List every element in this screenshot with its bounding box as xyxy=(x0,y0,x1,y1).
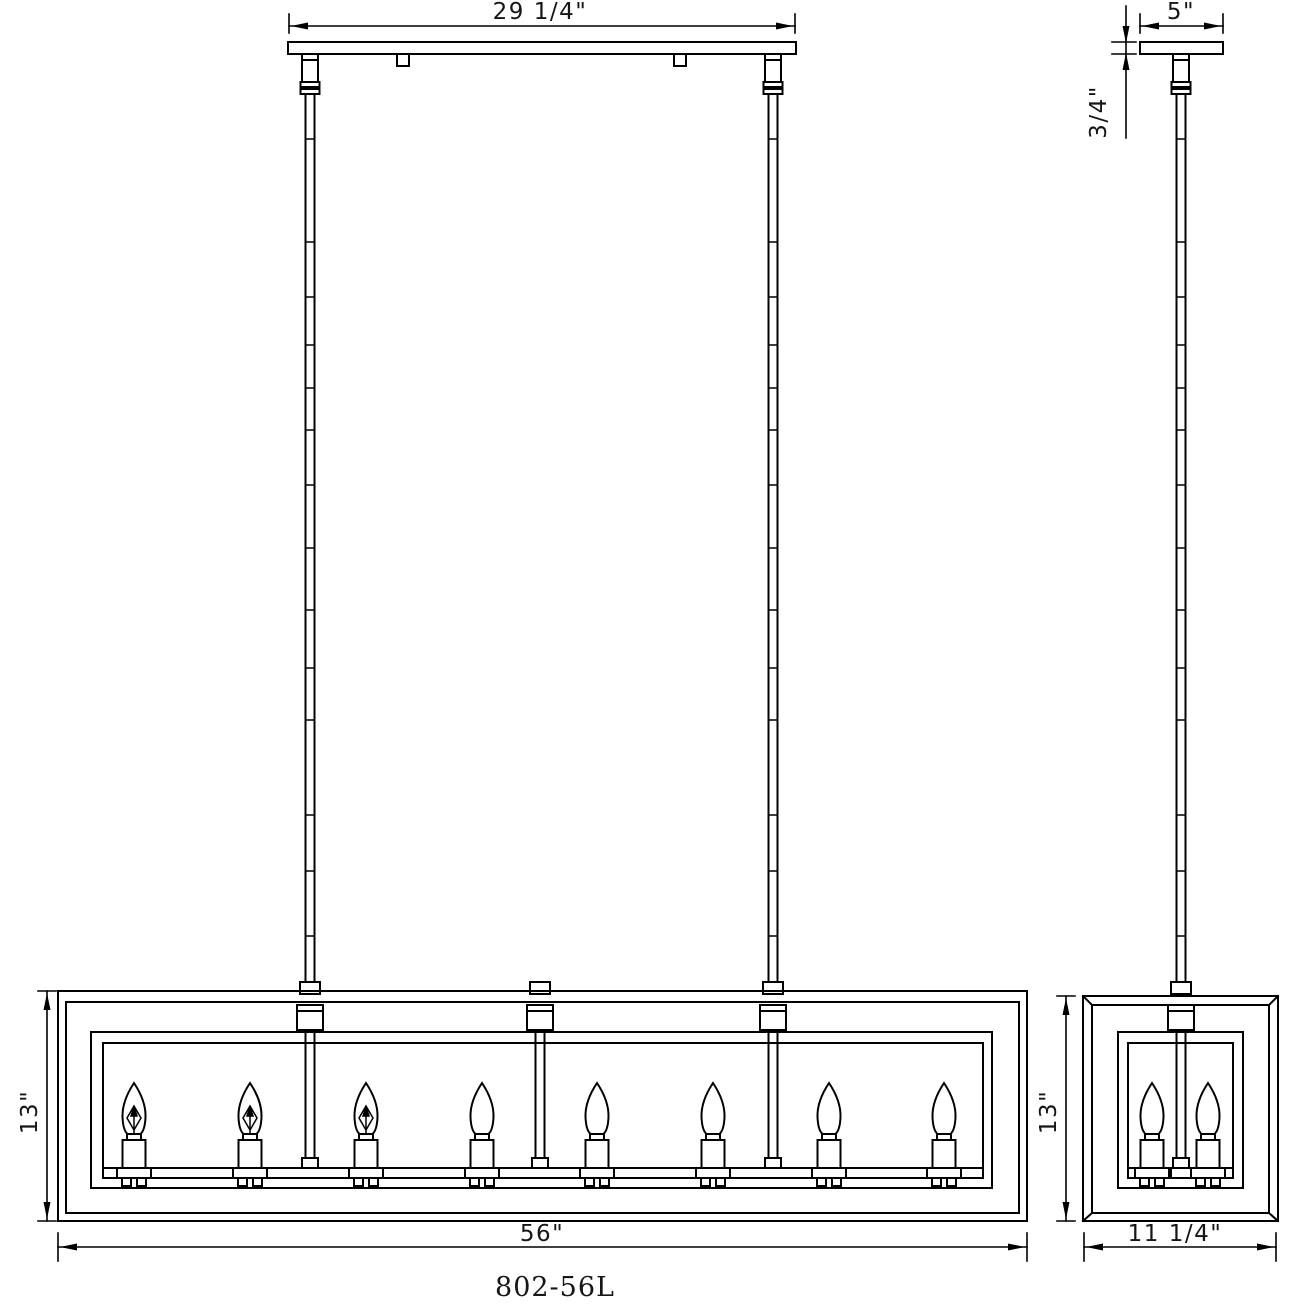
dim-side-fixture-depth: 11 1/4" xyxy=(1084,1221,1276,1261)
arrowhead xyxy=(291,23,308,30)
dimension-drawing-svg: 29 1/4" 5" 3/4" 13" xyxy=(0,0,1304,1304)
arrowhead xyxy=(1257,1244,1274,1251)
arrowhead xyxy=(776,23,793,30)
arrowhead xyxy=(44,1202,51,1219)
front-fixture-frame xyxy=(58,991,1027,1221)
side-fixture-height-label: 13" xyxy=(1036,1090,1062,1134)
side-fixture-depth-label: 11 1/4" xyxy=(1128,1221,1223,1247)
candle xyxy=(696,1083,730,1186)
dim-front-fixture-height: 13" xyxy=(17,991,56,1221)
dim-side-canopy-thickness: 3/4" xyxy=(1086,6,1136,139)
arrowhead xyxy=(1086,1244,1103,1251)
support-rod xyxy=(532,1031,548,1168)
front-fixture-height-label: 13" xyxy=(17,1090,43,1134)
frame-outer xyxy=(58,991,1027,1221)
canopy-bar xyxy=(1140,42,1223,54)
side-candles xyxy=(1135,1083,1225,1186)
canopy-bar xyxy=(288,42,796,54)
dim-front-canopy-width: 29 1/4" xyxy=(289,0,795,33)
canopy-screw-tab xyxy=(397,54,409,66)
support-rod xyxy=(302,1031,318,1168)
arrowhead xyxy=(1123,26,1130,43)
front-top-stub xyxy=(527,982,553,1030)
bulb-filament xyxy=(127,1106,141,1134)
front-view xyxy=(58,42,1027,1221)
model-number: 802-56L xyxy=(495,1272,615,1303)
technical-drawing-canvas: 29 1/4" 5" 3/4" 13" xyxy=(0,0,1304,1304)
candle xyxy=(1191,1083,1225,1186)
shade-box-outer xyxy=(91,1032,992,1188)
side-canopy-width-label: 5" xyxy=(1167,0,1195,25)
support-rod xyxy=(765,1031,781,1168)
side-view xyxy=(1083,42,1278,1221)
hanging-rod xyxy=(1168,54,1194,1030)
arrowhead xyxy=(1063,998,1070,1015)
shade-box-outer xyxy=(1118,1032,1243,1188)
candle xyxy=(465,1083,499,1186)
frame-mitre xyxy=(1269,1213,1278,1221)
front-fixture-width-label: 56" xyxy=(520,1221,564,1247)
bulb-filament xyxy=(359,1106,373,1134)
dimension-annotations: 29 1/4" 5" 3/4" 13" xyxy=(17,0,1276,1261)
arrowhead xyxy=(60,1244,77,1251)
front-canopy xyxy=(288,42,796,66)
candle xyxy=(1135,1083,1169,1186)
frame-mitre xyxy=(1269,996,1278,1005)
arrowhead xyxy=(1142,23,1159,30)
support-rod-base xyxy=(1171,1168,1191,1178)
dim-side-canopy-width: 5" xyxy=(1140,0,1223,33)
arrowhead xyxy=(1204,23,1221,30)
dim-front-fixture-width: 56" xyxy=(58,1221,1027,1261)
frame-inner xyxy=(66,1002,1019,1213)
bulb-filament xyxy=(243,1106,257,1134)
hanging-rod-right xyxy=(760,54,786,1030)
dim-side-fixture-height: 13" xyxy=(1036,996,1075,1221)
arrowhead xyxy=(1008,1244,1025,1251)
front-candles xyxy=(117,1083,961,1186)
arrowhead xyxy=(44,993,51,1010)
front-canopy-width-label: 29 1/4" xyxy=(493,0,588,25)
canopy-screw-tab xyxy=(674,54,686,66)
frame-mitre xyxy=(1083,1213,1092,1221)
frame-mitre xyxy=(1083,996,1092,1005)
arrowhead xyxy=(1063,1202,1070,1219)
candle xyxy=(580,1083,614,1186)
candle xyxy=(812,1083,846,1186)
side-canopy-thickness-label: 3/4" xyxy=(1086,85,1112,139)
candle xyxy=(927,1083,961,1186)
side-canopy xyxy=(1140,42,1223,54)
arrowhead xyxy=(1123,53,1130,70)
hanging-rod-left xyxy=(297,54,323,1030)
support-rod xyxy=(1173,1031,1189,1168)
